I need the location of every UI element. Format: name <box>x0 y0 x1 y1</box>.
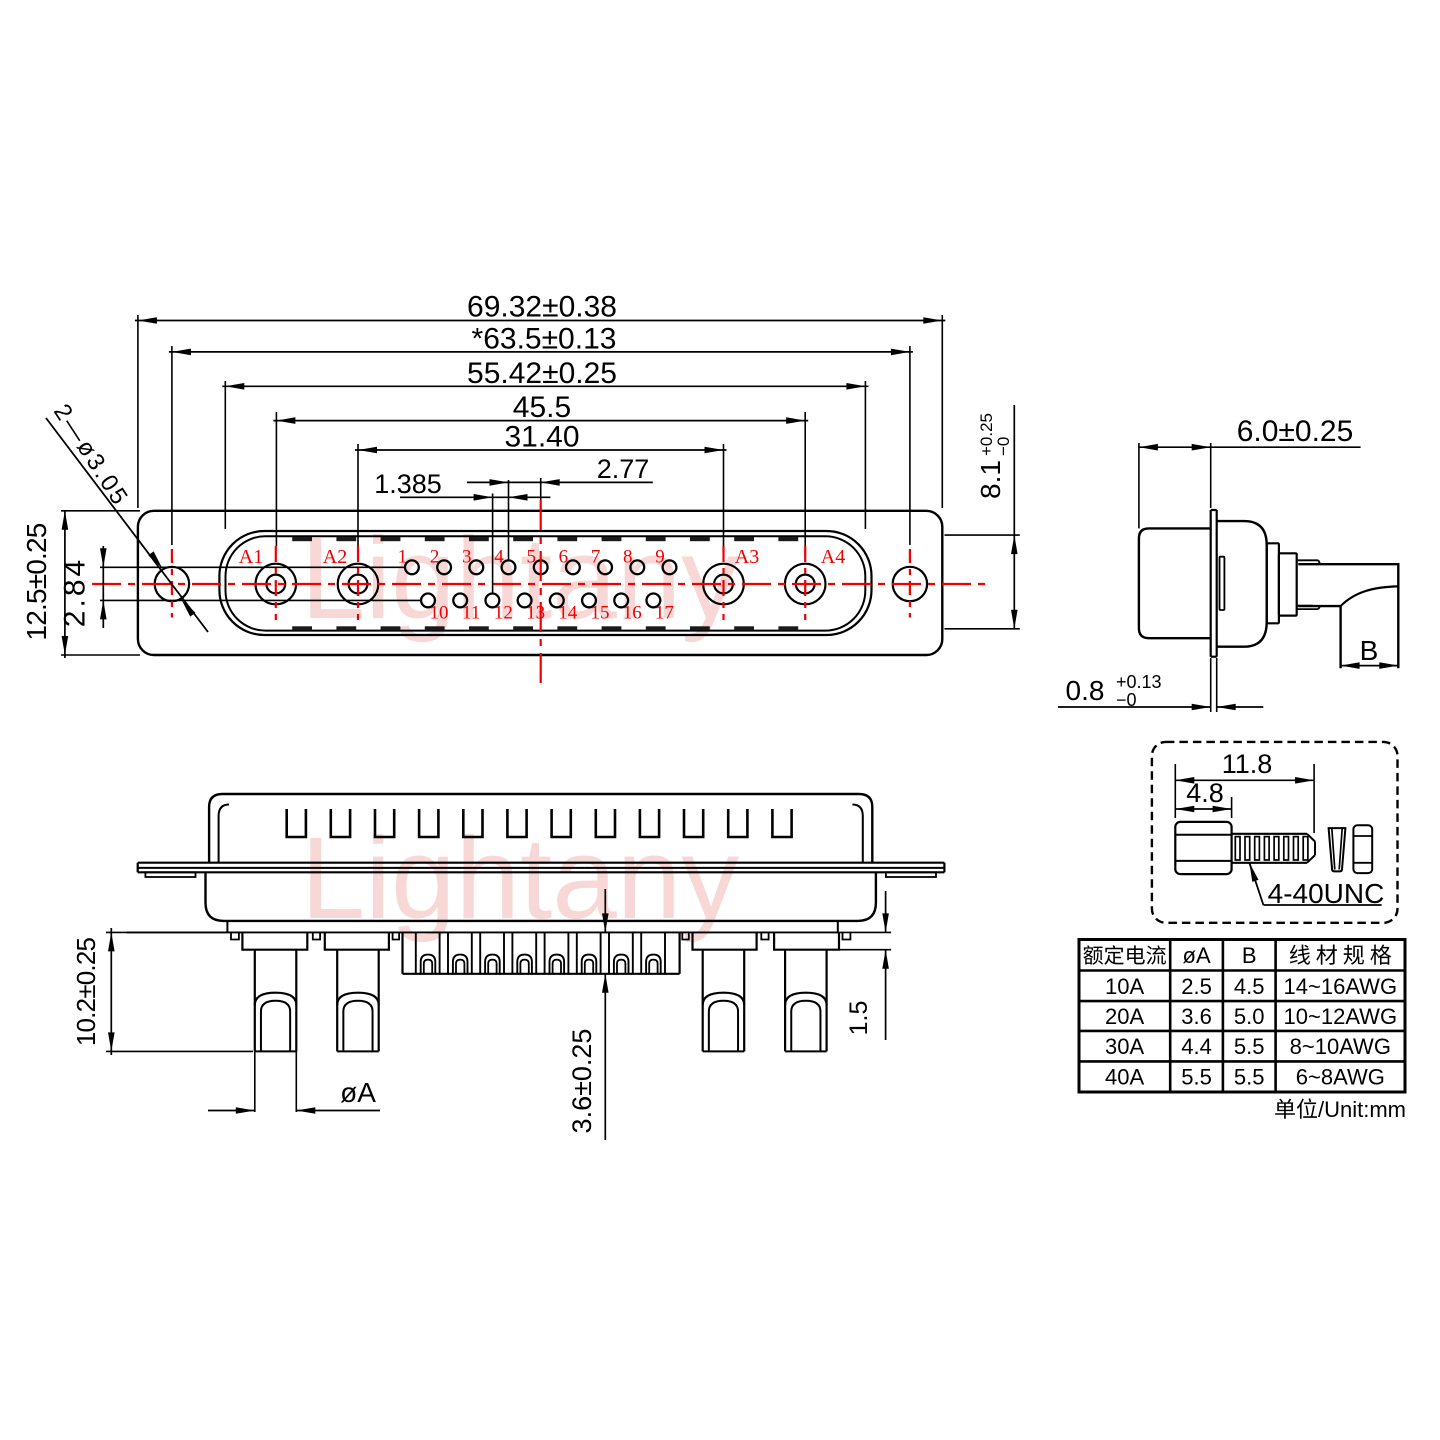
svg-text:10.2±0.25: 10.2±0.25 <box>71 938 101 1047</box>
svg-text:A1: A1 <box>239 546 263 568</box>
svg-text:+0.13: +0.13 <box>1116 672 1162 692</box>
svg-text:1: 1 <box>398 547 408 568</box>
svg-text:6~8AWG: 6~8AWG <box>1296 1065 1385 1090</box>
svg-text:6.0±0.25: 6.0±0.25 <box>1237 415 1354 448</box>
svg-text:10A: 10A <box>1105 974 1144 999</box>
svg-text:4.4: 4.4 <box>1181 1034 1212 1059</box>
svg-text:1.385: 1.385 <box>374 469 442 499</box>
svg-text:20A: 20A <box>1105 1004 1144 1029</box>
svg-text:øA: øA <box>340 1077 376 1108</box>
svg-text:Lightany: Lightany <box>301 813 740 943</box>
svg-text:8~10AWG: 8~10AWG <box>1290 1034 1391 1059</box>
svg-text:45.5: 45.5 <box>513 391 571 424</box>
svg-text:A2: A2 <box>323 546 347 568</box>
svg-text:3.6: 3.6 <box>1181 1004 1212 1029</box>
svg-text:B: B <box>1360 635 1379 666</box>
svg-text:*63.5±0.13: *63.5±0.13 <box>472 322 617 355</box>
svg-text:4: 4 <box>494 547 504 568</box>
svg-text:7: 7 <box>591 547 601 568</box>
svg-text:11: 11 <box>462 603 480 624</box>
svg-text:31.40: 31.40 <box>504 421 579 454</box>
svg-text:1.5: 1.5 <box>845 1001 873 1036</box>
svg-text:12: 12 <box>494 603 513 624</box>
svg-text:40A: 40A <box>1105 1065 1144 1090</box>
svg-text:15: 15 <box>591 603 610 624</box>
svg-text:6: 6 <box>559 547 569 568</box>
svg-text:0.8: 0.8 <box>1066 675 1105 706</box>
svg-text:B: B <box>1242 943 1257 968</box>
svg-text:10~12AWG: 10~12AWG <box>1284 1004 1398 1029</box>
svg-text:55.42±0.25: 55.42±0.25 <box>467 357 617 390</box>
svg-text:2.77: 2.77 <box>597 454 650 484</box>
svg-text:69.32±0.38: 69.32±0.38 <box>467 291 617 324</box>
svg-text:12.5±0.25: 12.5±0.25 <box>21 523 52 640</box>
svg-text:8: 8 <box>623 547 633 568</box>
svg-text:5.0: 5.0 <box>1234 1004 1265 1029</box>
svg-text:3: 3 <box>462 547 472 568</box>
svg-text:4.5: 4.5 <box>1234 974 1265 999</box>
svg-text:17: 17 <box>655 603 674 624</box>
svg-text:5: 5 <box>526 547 536 568</box>
svg-text:9: 9 <box>655 547 665 568</box>
svg-text:30A: 30A <box>1105 1034 1144 1059</box>
svg-text:2.5: 2.5 <box>1181 974 1212 999</box>
svg-text:4.8: 4.8 <box>1186 778 1224 808</box>
svg-text:11.8: 11.8 <box>1222 749 1273 779</box>
svg-text:/Unit:mm: /Unit:mm <box>1318 1097 1406 1122</box>
svg-text:2: 2 <box>430 547 440 568</box>
svg-text:øA: øA <box>1183 943 1211 968</box>
svg-text:5.5: 5.5 <box>1234 1034 1265 1059</box>
svg-text:3.6±0.25: 3.6±0.25 <box>567 1029 597 1134</box>
svg-text:14~16AWG: 14~16AWG <box>1284 974 1398 999</box>
svg-text:14: 14 <box>558 603 578 624</box>
svg-text:2.84: 2.84 <box>59 557 92 627</box>
svg-text:13: 13 <box>526 603 545 624</box>
svg-text:5.5: 5.5 <box>1181 1065 1212 1090</box>
svg-text:−0: −0 <box>994 437 1013 456</box>
svg-text:8.1: 8.1 <box>975 460 1006 499</box>
svg-text:10: 10 <box>430 603 449 624</box>
svg-text:16: 16 <box>623 603 642 624</box>
svg-text:A4: A4 <box>821 546 845 568</box>
svg-text:A3: A3 <box>735 546 759 568</box>
svg-text:5.5: 5.5 <box>1234 1065 1265 1090</box>
